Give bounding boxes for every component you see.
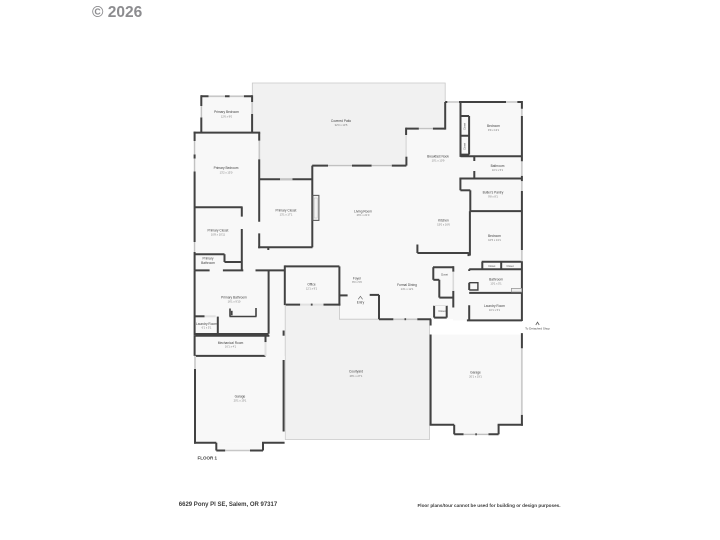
svg-text:20'1 x 19'1: 20'1 x 19'1 bbox=[234, 399, 247, 403]
svg-text:Primary Closet: Primary Closet bbox=[208, 229, 229, 233]
svg-text:13'1 x 17'1: 13'1 x 17'1 bbox=[280, 213, 293, 217]
svg-text:10'8 x 10'11: 10'8 x 10'11 bbox=[211, 233, 226, 237]
svg-text:6629 Pony Pl SE, Salem, OR 973: 6629 Pony Pl SE, Salem, OR 97317 bbox=[179, 502, 278, 508]
svg-text:FLOOR 1: FLOOR 1 bbox=[198, 456, 218, 461]
svg-text:Garage: Garage bbox=[470, 371, 481, 375]
svg-text:14'1 x 12'1: 14'1 x 12'1 bbox=[401, 287, 414, 291]
svg-text:8'0 x 5'0: 8'0 x 5'0 bbox=[352, 280, 362, 284]
svg-text:Primary Closet: Primary Closet bbox=[276, 209, 297, 213]
svg-text:32'0 x 13'5: 32'0 x 13'5 bbox=[335, 123, 348, 127]
svg-text:Closet: Closet bbox=[488, 265, 495, 268]
svg-text:13'2 x 15'0: 13'2 x 15'0 bbox=[220, 171, 233, 175]
svg-text:12'1 x 9'1: 12'1 x 9'1 bbox=[306, 287, 318, 291]
svg-text:Bathroom: Bathroom bbox=[489, 278, 503, 282]
svg-text:Kitchen: Kitchen bbox=[438, 219, 449, 223]
svg-text:Covered Patio: Covered Patio bbox=[331, 119, 351, 123]
svg-text:Foyer: Foyer bbox=[353, 276, 362, 280]
svg-text:16'1 x 4'1: 16'1 x 4'1 bbox=[225, 345, 237, 349]
svg-text:6'1 x 5'1: 6'1 x 5'1 bbox=[202, 326, 212, 330]
svg-text:Primary Bedroom: Primary Bedroom bbox=[214, 166, 239, 170]
svg-text:Laundry Room: Laundry Room bbox=[196, 322, 217, 326]
svg-text:9'8 x 8'1: 9'8 x 8'1 bbox=[488, 195, 498, 199]
svg-text:16'1 x 9'10: 16'1 x 9'10 bbox=[228, 300, 241, 304]
svg-text:Breakfast Nook: Breakfast Nook bbox=[427, 155, 449, 159]
svg-text:10'5 x 13'1: 10'5 x 13'1 bbox=[488, 238, 501, 242]
svg-text:Entry: Entry bbox=[357, 301, 365, 305]
svg-text:9'9 x 13'1: 9'9 x 13'1 bbox=[488, 128, 500, 132]
svg-text:Mechanical Room: Mechanical Room bbox=[218, 341, 244, 345]
svg-text:Closet: Closet bbox=[441, 273, 448, 276]
svg-text:15'0 x 16'6: 15'0 x 16'6 bbox=[437, 223, 450, 227]
svg-text:28'1 x 27'1: 28'1 x 27'1 bbox=[350, 374, 363, 378]
svg-text:10'1 x 10'9: 10'1 x 10'9 bbox=[432, 159, 445, 163]
svg-text:Closet: Closet bbox=[506, 265, 513, 268]
svg-text:Primary Bathroom: Primary Bathroom bbox=[221, 296, 247, 300]
svg-text:Closet: Closet bbox=[438, 310, 445, 313]
svg-text:Office: Office bbox=[307, 283, 315, 287]
svg-text:12'6 x 9'0: 12'6 x 9'0 bbox=[221, 115, 233, 119]
svg-text:Courtyard: Courtyard bbox=[349, 370, 363, 374]
svg-text:10'1 x 5'1: 10'1 x 5'1 bbox=[490, 282, 502, 286]
svg-text:Garage: Garage bbox=[235, 395, 246, 399]
svg-text:Butler's Pantry: Butler's Pantry bbox=[483, 191, 504, 195]
svg-text:Bedroom: Bedroom bbox=[488, 234, 501, 238]
svg-text:Laundry Room: Laundry Room bbox=[484, 304, 505, 308]
svg-text:26'1 x 21'0: 26'1 x 21'0 bbox=[357, 213, 370, 217]
svg-text:Bedroom: Bedroom bbox=[487, 124, 500, 128]
svg-text:Primary Bedroom: Primary Bedroom bbox=[214, 110, 239, 114]
svg-text:© 2026: © 2026 bbox=[92, 4, 143, 21]
svg-text:Floor plans/tour cannot be use: Floor plans/tour cannot be used for buil… bbox=[417, 503, 560, 508]
svg-text:Living Room: Living Room bbox=[354, 209, 372, 213]
svg-text:Bathroom: Bathroom bbox=[201, 261, 215, 265]
svg-text:To Detached Shop: To Detached Shop bbox=[525, 327, 550, 331]
svg-text:Bathroom: Bathroom bbox=[491, 164, 505, 168]
svg-text:10'1 x 5'1: 10'1 x 5'1 bbox=[489, 308, 501, 312]
svg-text:Closet: Closet bbox=[463, 123, 466, 130]
svg-text:Formal Dining: Formal Dining bbox=[397, 283, 417, 287]
svg-text:20'1 x 19'1: 20'1 x 19'1 bbox=[469, 375, 482, 379]
svg-text:Closet: Closet bbox=[463, 143, 466, 150]
svg-text:10'1 x 5'1: 10'1 x 5'1 bbox=[492, 168, 504, 172]
